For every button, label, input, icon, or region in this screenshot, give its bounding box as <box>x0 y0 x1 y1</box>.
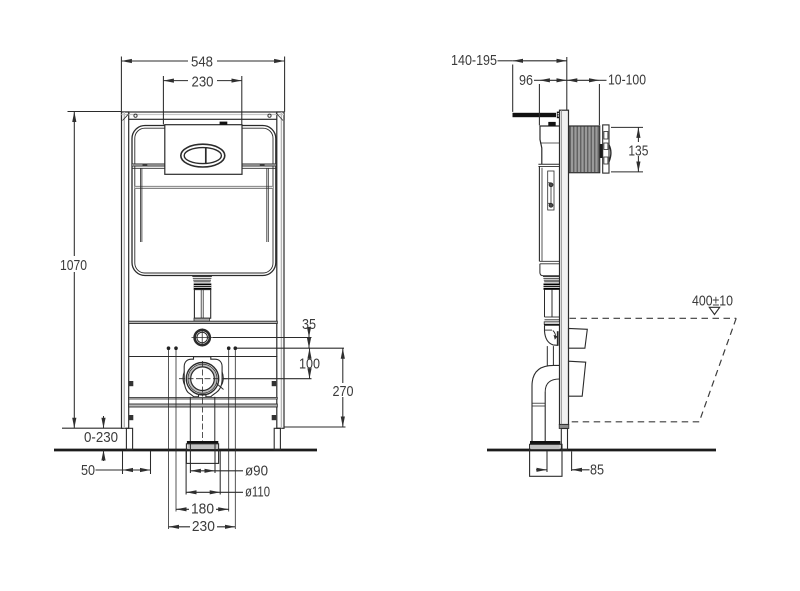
svg-text:96: 96 <box>519 72 533 89</box>
svg-text:ø90: ø90 <box>245 463 268 480</box>
svg-text:230: 230 <box>192 73 214 90</box>
svg-text:35: 35 <box>302 316 316 333</box>
svg-text:0-230: 0-230 <box>84 429 118 446</box>
svg-text:270: 270 <box>333 383 354 400</box>
svg-text:180: 180 <box>191 501 214 518</box>
svg-text:50: 50 <box>81 462 95 479</box>
svg-text:140-195: 140-195 <box>451 52 497 69</box>
svg-text:400±10: 400±10 <box>692 293 733 310</box>
svg-text:100: 100 <box>299 356 320 373</box>
svg-text:ø110: ø110 <box>245 484 270 501</box>
svg-text:135: 135 <box>628 143 648 160</box>
svg-text:10-100: 10-100 <box>608 72 646 89</box>
svg-text:548: 548 <box>191 54 213 71</box>
svg-text:1070: 1070 <box>60 257 87 274</box>
svg-text:85: 85 <box>590 462 604 479</box>
svg-text:230: 230 <box>192 518 215 535</box>
